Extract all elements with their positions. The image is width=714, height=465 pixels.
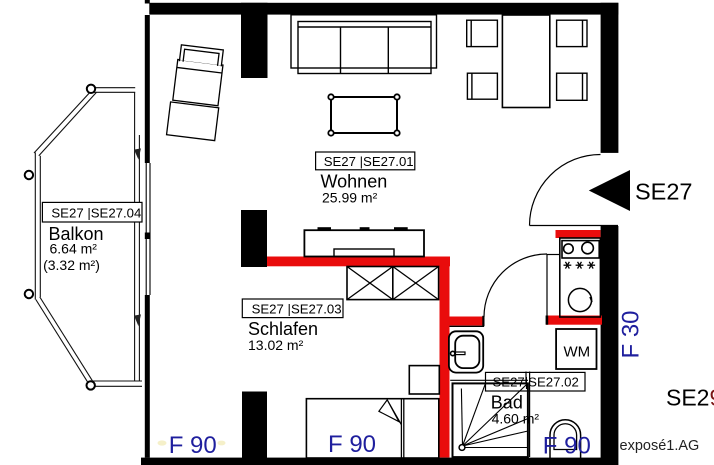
svg-text:WM: WM [564,344,591,361]
svg-text:Schlafen: Schlafen [248,319,318,339]
svg-text:4.60 m²: 4.60 m² [492,410,540,426]
svg-text:F 90: F 90 [328,431,376,458]
svg-text:25.99 m²: 25.99 m² [322,190,378,206]
svg-text:SE29: SE29 [666,385,714,411]
svg-text:SE27: SE27 [635,179,693,205]
svg-text:(3.32 m²): (3.32 m²) [43,257,100,273]
svg-text:F 30: F 30 [617,310,644,358]
svg-text:F 90: F 90 [543,433,591,460]
svg-text:Wohnen: Wohnen [321,172,388,192]
svg-text:SE27 |SE27.04: SE27 |SE27.04 [51,206,141,221]
svg-text:SE27 |SE27.01: SE27 |SE27.01 [324,154,414,169]
svg-text:F 90: F 90 [169,432,217,459]
svg-text:SE27 |SE27.03: SE27 |SE27.03 [252,302,342,317]
svg-text:SE27|SE27.02: SE27|SE27.02 [493,375,579,390]
svg-text:6.64 m²: 6.64 m² [50,241,98,257]
svg-text:13.02 m²: 13.02 m² [248,337,304,353]
svg-text:exposé1.AG: exposé1.AG [620,438,700,454]
